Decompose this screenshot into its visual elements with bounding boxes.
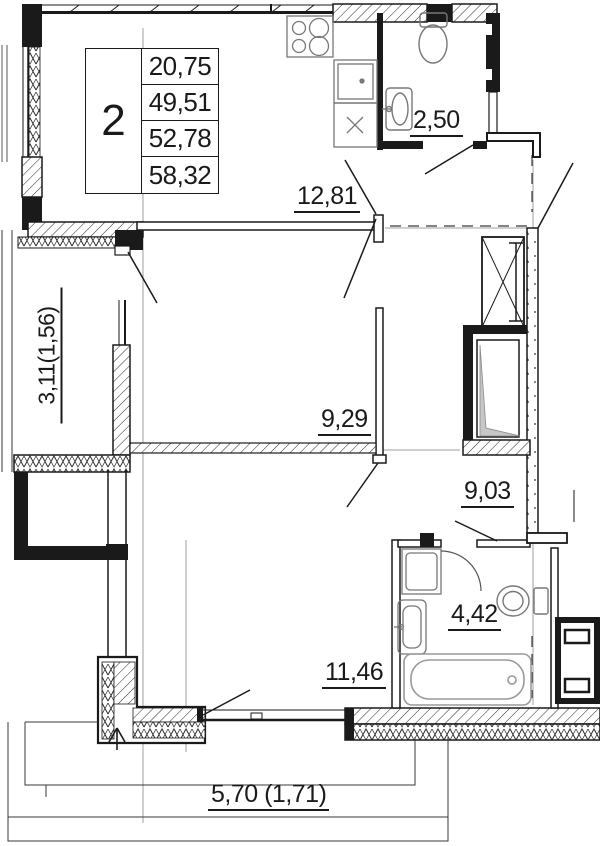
kitchen-sink-icon	[334, 60, 377, 103]
top-exterior-wall	[22, 4, 497, 47]
wc-door-leaf	[425, 145, 473, 174]
room-area-label-bathroom: 4,42	[448, 602, 501, 631]
window-ticks	[70, 5, 314, 12]
room-area-label-room-middle: 9,29	[318, 407, 371, 436]
room-area-label-balcony-left: 3,11(1,56)	[36, 288, 63, 424]
balcony-left	[2, 230, 157, 560]
area-value: 58,32	[142, 157, 218, 193]
room-bottom-walls	[98, 443, 600, 743]
entrance	[527, 163, 573, 533]
appliance-icon	[334, 103, 377, 147]
radiator-block	[558, 490, 597, 701]
room-area-label-wc: 2,50	[410, 108, 463, 137]
left-exterior-wall	[2, 45, 42, 230]
room-count: 2	[86, 49, 142, 193]
room-area-label-room-bottom: 11,46	[322, 660, 386, 689]
area-value: 49,51	[142, 85, 218, 121]
area-value: 52,78	[142, 121, 218, 157]
vent-shafts	[463, 237, 530, 455]
kitchen	[287, 16, 377, 147]
bath-toilet-icon	[497, 586, 548, 616]
wc-room	[377, 13, 540, 174]
stove-icon	[287, 16, 333, 57]
shaft-crossed	[482, 237, 524, 327]
washing-machine-icon	[402, 549, 441, 594]
room-area-label-hallway: 9,03	[461, 479, 514, 508]
apartment-areas-table: 2 20,75 49,51 52,78 58,32	[85, 48, 219, 194]
room-area-label-kitchen-living: 12,81	[294, 184, 360, 213]
bathtub-icon	[404, 654, 531, 705]
bathroom-door-leaf	[441, 521, 497, 591]
balcony-door-bottom-leaf	[203, 690, 250, 715]
area-value: 20,75	[142, 49, 218, 85]
entrance-door-leaf	[538, 163, 573, 228]
room-door-leaf	[347, 463, 378, 507]
wc-sink-icon	[382, 88, 412, 130]
room-area-label-balcony-bottom: 5,70 (1,71)	[208, 782, 329, 811]
shaft-duct	[463, 325, 527, 445]
floor-plan-page: 2 20,75 49,51 52,78 58,32 2,50 12,81 3,1…	[0, 0, 600, 846]
